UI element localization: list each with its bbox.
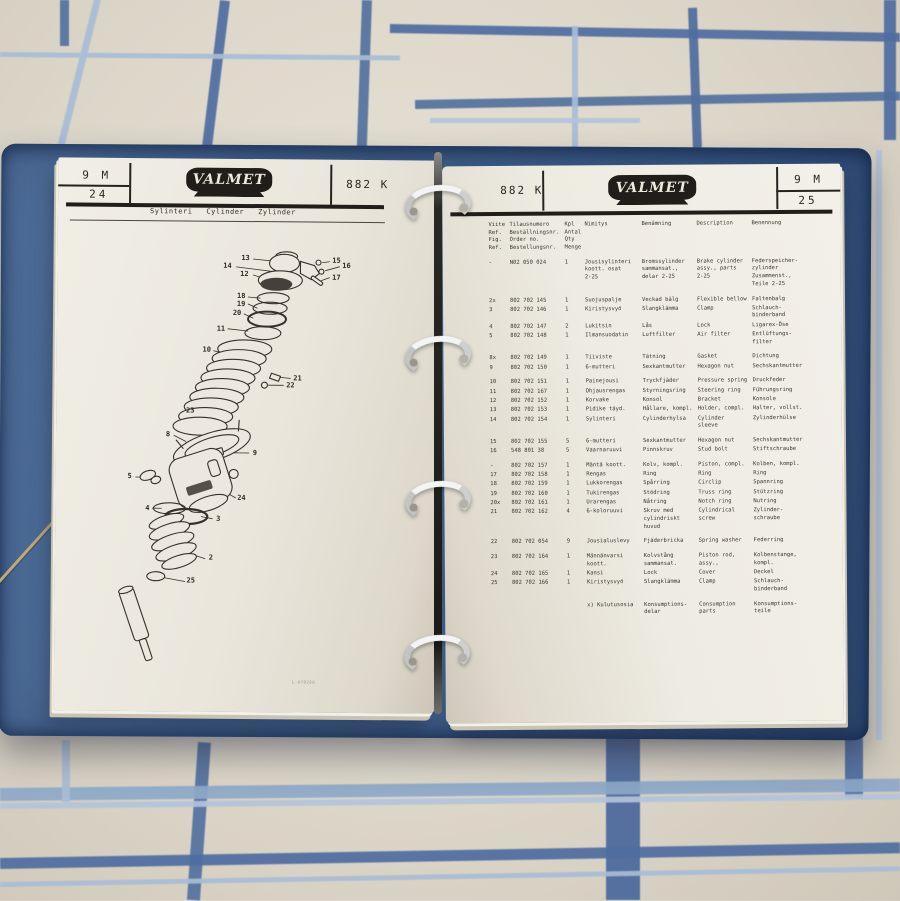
table-row: 8x802 702 1491TiivisteTätningGasketDicht… (489, 353, 819, 363)
column-header-benamning: Benämning (641, 221, 696, 252)
table-cell-no: 802 702 155 (511, 438, 566, 446)
table-cell-en: Ring (698, 470, 753, 478)
table-cell-qty: 1 (565, 332, 585, 348)
table-cell-de: Dichtung (752, 353, 816, 361)
part-label: 10 (202, 346, 211, 354)
part-label: 23 (186, 406, 195, 414)
table-cell-fi: Tiiviste (585, 354, 642, 362)
part-label: 8 (166, 430, 170, 438)
table-cell-en: Lock (697, 322, 752, 330)
table-cell-ref: 13 (490, 407, 511, 415)
table-cell-de: Sechskantmutter (753, 437, 817, 445)
header-line (58, 184, 129, 186)
table-cell-de: Nutring (753, 498, 817, 506)
part-label: 19 (237, 300, 246, 308)
table-cell-en: Cover (699, 569, 754, 577)
table-cell-qty: 1 (566, 397, 586, 405)
table-cell-en: Clamp (699, 578, 754, 594)
table-cell-qty: 1 (565, 364, 585, 372)
table-cell-fi: 6-koloruuvi (586, 508, 643, 531)
table-row: 2x802 702 1451SuojuspaljeVeckad bälgFlex… (489, 295, 819, 305)
table-cell-ref: 25 (491, 580, 512, 596)
table-cell-fi: Sylinteri (586, 416, 643, 432)
table-cell-fi: Tukirengas (586, 490, 643, 498)
table-cell-fi: Urarengas (586, 499, 643, 507)
table-cell-ref: - (489, 260, 510, 291)
table-cell-ref: 16 (490, 448, 511, 456)
table-cell-en: Cylinder sleeve (698, 415, 753, 431)
table-cell-no: 802 702 162 (511, 509, 566, 532)
table-cell-sv: Konsol (643, 397, 698, 405)
valmet-logo-text: VALMET (193, 172, 266, 189)
valmet-logo-text: VALMET (616, 179, 689, 196)
table-row: 25802 702 1661KiristysvyöSlangklämmaClam… (491, 578, 821, 596)
table-cell-sv: Ring (643, 471, 698, 479)
table-cell-fi: Ilmansuodatin (585, 332, 642, 348)
table-row: x) KulutusosiaKonsumptions- delarConsump… (491, 600, 821, 618)
column-header-order-no: Tilausnumero Beställningsnr. Order no. B… (509, 222, 564, 253)
table-cell-no: N02 050 024 (510, 259, 565, 290)
table-cell-ref: 15 (490, 439, 511, 447)
table-cell-de: Schlauch- binderband (752, 305, 816, 321)
table-cell-en: Piston, compl. (698, 461, 753, 469)
table-cell-qty: 5 (566, 448, 586, 456)
table-cell-en: Circlip (698, 480, 753, 488)
table-row: 12802 702 1521KorvakeKonsolBracketKonsol… (490, 396, 820, 406)
table-cell-qty: 1 (565, 297, 585, 305)
table-cell-fi: Ohjausrengas (586, 388, 643, 396)
part-label: 18 (237, 292, 246, 300)
plaid-stripe (390, 24, 900, 42)
exploded-diagram: 13 14 12 15 16 17 18 19 20 11 10 21 22 2… (64, 219, 428, 692)
table-cell-de: Druckfeder (753, 377, 817, 385)
table-cell-no: 802 702 054 (512, 539, 567, 547)
table-cell-qty: 1 (566, 499, 586, 507)
table-cell-qty: 1 (566, 462, 586, 470)
table-cell-ref: 22 (491, 539, 512, 547)
table-cell-en: Holder, compl. (698, 405, 753, 413)
table-cell-sv: Tätning (642, 354, 697, 362)
page-group: 9 M (794, 173, 823, 186)
table-cell-sv: Lås (642, 322, 697, 330)
part-label: 20 (233, 309, 242, 317)
column-header-nimitys: Nimitys (584, 221, 641, 252)
table-cell-fi: Suojuspalje (585, 297, 642, 305)
table-cell-fi: Pidike täyd. (586, 406, 643, 414)
table-cell-ref: 17 (490, 472, 511, 480)
table-cell-de: Stützring (753, 488, 817, 496)
table-row: 5802 702 1481IlmansuodatinLuftfilterAir … (489, 331, 819, 349)
plaid-stripe (0, 842, 900, 869)
table-cell-fi: Lukitsin (585, 323, 642, 331)
table-cell-sv: Kolv, kompl. (643, 461, 698, 469)
part-label: 16 (342, 262, 351, 270)
part-label: 5 (127, 472, 131, 480)
valmet-logo: VALMET (186, 167, 272, 192)
binder-spine (434, 152, 442, 714)
table-cell-sv: Konsumptions- delar (644, 601, 699, 617)
part-label: 2 (209, 554, 213, 562)
table-cell-qty: 1 (567, 553, 587, 569)
table-cell-en: Pressure spring (698, 378, 753, 386)
table-cell-de: Zylinderhülse (753, 414, 817, 430)
header-line (129, 163, 131, 203)
part-label: 13 (241, 254, 250, 262)
table-cell-en: Notch ring (698, 498, 753, 506)
plaid-stripe (357, 0, 372, 152)
table-cell-sv: Luftfilter (642, 332, 697, 348)
table-cell-qty: 4 (566, 509, 586, 532)
table-cell-en: Truss ring (698, 489, 753, 497)
table-cell-ref: 2x (489, 297, 510, 305)
table-cell-sv: Cylinderhylsa (643, 415, 698, 431)
table-cell-no: 802 702 165 (512, 571, 567, 579)
table-row: 4802 702 1472LukitsinLåsLockLigarex-Öse (489, 322, 819, 332)
part-label: 3 (216, 515, 220, 523)
table-cell-en: Hexagon nut (698, 437, 753, 445)
table-cell-no (512, 602, 567, 618)
table-cell-en: Brake cylinder assy., parts 2-25 (697, 258, 752, 289)
table-cell-qty: 9 (567, 539, 587, 547)
table-cell-ref: 20x (490, 500, 511, 508)
table-cell-no: 802 702 146 (510, 306, 565, 322)
table-cell-qty: 1 (566, 407, 586, 415)
right-page: 882 K VALMET 9 M 25 Viite Ref. Fig. Ref.… (442, 164, 844, 724)
part-label: 4 (145, 504, 149, 512)
page-number: 25 (798, 194, 817, 207)
part-label: 12 (240, 270, 249, 278)
table-row: 18802 702 1591LukkorengasSpårringCirclip… (490, 479, 820, 489)
table-row: 19802 702 1601TukirengasStödringTruss ri… (490, 488, 820, 498)
table-cell-sv: Styrningsring (643, 387, 698, 395)
drawing-ref: L-870286 (292, 679, 315, 684)
page-number: 24 (89, 188, 108, 201)
table-cell-en: Flexible bellow (697, 296, 752, 304)
table-cell-no: 802 702 167 (511, 388, 566, 396)
header-line (776, 190, 840, 192)
table-cell-ref: 11 (490, 389, 511, 397)
parts-table-header: Viite Ref. Fig. Ref. Tilausnumero Bestäl… (488, 220, 818, 253)
table-cell-de: Federring (754, 537, 818, 545)
table-row: 20x802 702 1611UrarengasNåtringNotch rin… (490, 498, 820, 508)
table-cell-ref: 19 (490, 491, 511, 499)
table-row: 16548 801 385VaarnaruuviPinnskruvStud bo… (490, 446, 820, 456)
table-cell-sv: Hållare, kompl. (643, 406, 698, 414)
table-cell-sv: Lock (644, 570, 699, 578)
table-cell-sv: Bromssylinder sammansat., delar 2-25 (642, 258, 697, 289)
part-label: 11 (217, 325, 226, 333)
table-cell-en: Bracket (698, 396, 753, 404)
table-cell-fi: Männänvarsi koott. (587, 553, 644, 569)
table-cell-fi: 6-mutteri (586, 438, 643, 446)
table-cell-no: 802 702 149 (510, 355, 565, 363)
column-header-description: Description (696, 220, 751, 251)
table-cell-ref (491, 603, 512, 619)
table-row: 10802 702 1511PainejousiTryckfjäderPress… (490, 377, 820, 387)
table-cell-fi: Vaarnaruuvi (586, 447, 643, 455)
table-cell-qty: 1 (566, 379, 586, 387)
table-cell-qty: 1 (566, 481, 586, 489)
table-cell-en: Cylindrical screw (698, 507, 753, 530)
table-cell-sv: Slangklämma (644, 579, 699, 595)
table-cell-no: 802 702 161 (511, 500, 566, 508)
part-label: 24 (237, 494, 246, 502)
section-code: 882 K (346, 178, 389, 191)
table-cell-no: 802 702 147 (510, 323, 565, 331)
table-cell-de: Ligarex-Öse (752, 322, 816, 330)
part-label: 14 (223, 262, 232, 270)
plaid-stripe (884, 0, 896, 140)
table-cell-qty: 1 (566, 388, 586, 396)
header-line (776, 167, 778, 209)
table-cell-no: 802 702 148 (510, 333, 565, 349)
table-cell-qty: 5 (566, 438, 586, 446)
part-label: 9 (253, 449, 257, 457)
header-rule (450, 210, 832, 216)
table-cell-en: Piston rod, assy., (699, 552, 754, 568)
table-cell-ref: 21 (490, 509, 511, 532)
column-header-benennung: Benennung (751, 220, 815, 251)
table-cell-sv: Sexkantmutter (642, 363, 697, 371)
table-row: 21802 702 16246-koloruuviSkruv med cylin… (490, 507, 820, 532)
table-cell-qty: 1 (567, 580, 587, 596)
table-row: 3802 702 1461KiristysvyöSlangklämmaClamp… (489, 305, 819, 323)
table-cell-fi: x) Kulutusosia (587, 602, 644, 618)
table-row: 9802 702 15016-mutteriSexkantmutterHexag… (489, 362, 819, 372)
left-page: 9 M 24 VALMET 882 K Sylinteri Cylinder Z… (54, 157, 440, 713)
table-cell-sv: Stödring (643, 489, 698, 497)
table-cell-en: Gasket (697, 354, 752, 362)
table-cell-de: Konsumptions- teile (754, 600, 818, 616)
photo-scene: { "colors": { "binder_blue": "#45658f", … (0, 0, 900, 900)
table-cell-sv: Veckad bälg (642, 296, 697, 304)
table-cell-qty: 1 (566, 490, 586, 498)
table-cell-en: Stud bolt (698, 446, 753, 454)
table-cell-fi: Rengas (586, 471, 643, 479)
table-cell-de: Zylinder- schraube (753, 507, 817, 531)
table-cell-fi: Kiristysvyö (587, 579, 644, 595)
table-cell-no: 802 702 152 (511, 397, 566, 405)
table-cell-no: 802 702 157 (511, 462, 566, 470)
table-cell-en: Clamp (697, 305, 752, 321)
table-row: 24802 702 1651KansiLockCoverDeckel (491, 569, 821, 579)
table-cell-qty (567, 602, 587, 618)
part-label: 17 (332, 274, 341, 282)
subtitle-en: Cylinder (206, 208, 244, 216)
table-cell-fi: Painejousi (586, 378, 643, 386)
table-row: 13802 702 1531Pidike täyd.Hållare, kompl… (490, 405, 820, 415)
table-cell-fi: Kansi (587, 570, 644, 578)
table-cell-de: Konsole (753, 396, 817, 404)
table-row: 23802 702 1641Männänvarsi koott.Kolvstån… (491, 552, 821, 570)
page-group: 9 M (82, 169, 111, 182)
plaid-stripe (876, 150, 882, 740)
table-cell-ref: 10 (490, 379, 511, 387)
table-cell-sv: Slangklämma (642, 305, 697, 321)
subtitle-de: Zylinder (258, 208, 296, 216)
table-cell-ref: 8x (489, 355, 510, 363)
table-cell-no: 802 702 166 (512, 580, 567, 596)
column-header-ref: Viite Ref. Fig. Ref. (488, 222, 509, 253)
part-label: 15 (332, 257, 341, 265)
part-label: 25 (186, 576, 195, 584)
table-cell-de: Deckel (754, 569, 818, 577)
table-cell-de: Stiftschraube (753, 446, 817, 454)
section-code: 882 K (500, 184, 543, 197)
table-cell-qty: 1 (565, 306, 585, 322)
plaid-stripe (62, 740, 70, 802)
plaid-stripe (430, 118, 640, 123)
plaid-stripe (60, 0, 69, 46)
page-subtitle: Sylinteri Cylinder Zylinder (116, 207, 330, 217)
table-row: 14802 702 1541SylinteriCylinderhylsaCyli… (490, 414, 820, 432)
table-cell-en: Hexagon nut (697, 363, 752, 371)
table-cell-fi: 6-mutteri (585, 364, 642, 372)
column-header-qty: Kpl Antal Qty Menge (564, 221, 584, 252)
plaid-stripe (187, 742, 211, 901)
table-cell-no: 802 702 153 (511, 407, 566, 415)
table-cell-ref: 5 (489, 333, 510, 349)
table-cell-en: Steering ring (698, 387, 753, 395)
table-row: 11802 702 1671OhjausrengasStyrningsringS… (490, 386, 820, 396)
table-cell-no: 548 801 38 (511, 448, 566, 456)
valmet-logo: VALMET (608, 175, 696, 201)
table-cell-fi: Jousialuslevy (587, 538, 644, 546)
table-row: 22802 702 0549JousialuslevyFjäderbrickaS… (491, 537, 821, 547)
table-cell-qty: 1 (566, 416, 586, 432)
table-cell-no: 802 702 158 (511, 472, 566, 480)
table-cell-no: 802 702 145 (510, 297, 565, 305)
table-cell-qty: 1 (567, 570, 587, 578)
table-cell-fi: Kiristysvyö (585, 306, 642, 322)
table-cell-ref: 14 (490, 416, 511, 432)
table-cell-no: 802 702 164 (512, 554, 567, 570)
table-cell-fi: Korvake (586, 397, 643, 405)
table-cell-sv: Spårring (643, 480, 698, 488)
table-cell-de: Entlüftungs- filter (752, 331, 816, 347)
table-cell-sv: Kolvstång sammansat. (644, 553, 699, 569)
table-cell-de: Kolbenstange, kompl. (754, 552, 818, 568)
table-cell-no: 802 702 160 (511, 490, 566, 498)
table-cell-de: Halter, vollst. (753, 405, 817, 413)
table-row: -802 702 1571Mäntä koott.Kolv, kompl.Pis… (490, 461, 820, 471)
table-row: 17802 702 1581RengasRingRingRing (490, 470, 820, 480)
table-cell-fi: Jousisylinteri koott. osat 2-25 (585, 259, 642, 290)
table-cell-ref: 4 (489, 324, 510, 332)
table-cell-de: Kolben, kompl. (753, 461, 817, 469)
table-cell-ref: 12 (490, 398, 511, 406)
table-cell-de: Faltenbalg (752, 295, 816, 303)
table-cell-qty: 1 (565, 355, 585, 363)
plaid-stripe (572, 26, 578, 150)
header-line (330, 165, 332, 205)
parts-table-body: -N02 050 0241Jousisylinteri koott. osat … (489, 258, 821, 619)
plaid-stripe (201, 0, 230, 156)
table-cell-de: Führungsring (753, 386, 817, 394)
table-cell-ref: 9 (489, 365, 510, 373)
table-cell-ref: 3 (489, 307, 510, 323)
table-cell-en: Consumption parts (699, 601, 754, 617)
table-cell-ref: 18 (490, 481, 511, 489)
subtitle-fi: Sylinteri (150, 207, 193, 215)
table-cell-sv: Pinnskruv (643, 447, 698, 455)
table-cell-qty: 2 (565, 323, 585, 331)
header-line (542, 171, 544, 211)
table-cell-de: Sechskantmutter (752, 362, 816, 370)
table-cell-qty: 1 (566, 472, 586, 480)
parts-table: Viite Ref. Fig. Ref. Tilausnumero Bestäl… (488, 220, 821, 618)
exploded-diagram-drawing (64, 219, 428, 692)
plaid-stripe (0, 866, 900, 887)
table-cell-ref: 23 (491, 554, 512, 570)
table-cell-en: Spring washer (699, 538, 754, 546)
table-cell-fi: Mäntä koott. (586, 462, 643, 470)
table-cell-no: 802 702 151 (511, 379, 566, 387)
table-cell-de: Schlauch- binderband (754, 578, 818, 594)
table-cell-no: 802 702 150 (510, 364, 565, 372)
table-cell-no: 802 702 154 (511, 416, 566, 432)
table-cell-sv: Sexkantmutter (643, 437, 698, 445)
table-cell-sv: Tryckfjäder (643, 378, 698, 386)
table-cell-sv: Fjäderbricka (644, 538, 699, 546)
table-row: -N02 050 0241Jousisylinteri koott. osat … (489, 258, 819, 291)
table-cell-en: Air filter (697, 331, 752, 347)
table-cell-sv: Nåtring (643, 499, 698, 507)
table-row: 15802 702 15556-mutteriSexkantmutterHexa… (490, 437, 820, 447)
table-cell-no: 802 702 159 (511, 481, 566, 489)
plaid-stripe (415, 92, 900, 109)
table-cell-fi: Lukkorengas (586, 480, 643, 488)
table-cell-ref: 24 (491, 571, 512, 579)
table-cell-de: Ring (753, 470, 817, 478)
table-cell-de: Spannring (753, 479, 817, 487)
table-cell-de: Federspeicher- zylinder Zusammenst., Tei… (752, 258, 816, 289)
table-cell-ref: - (490, 463, 511, 471)
table-cell-sv: Skruv med cylindriskt huvud (643, 508, 698, 531)
plaid-stripe (0, 52, 400, 60)
part-label: 22 (286, 381, 295, 389)
table-cell-qty: 1 (565, 259, 585, 290)
